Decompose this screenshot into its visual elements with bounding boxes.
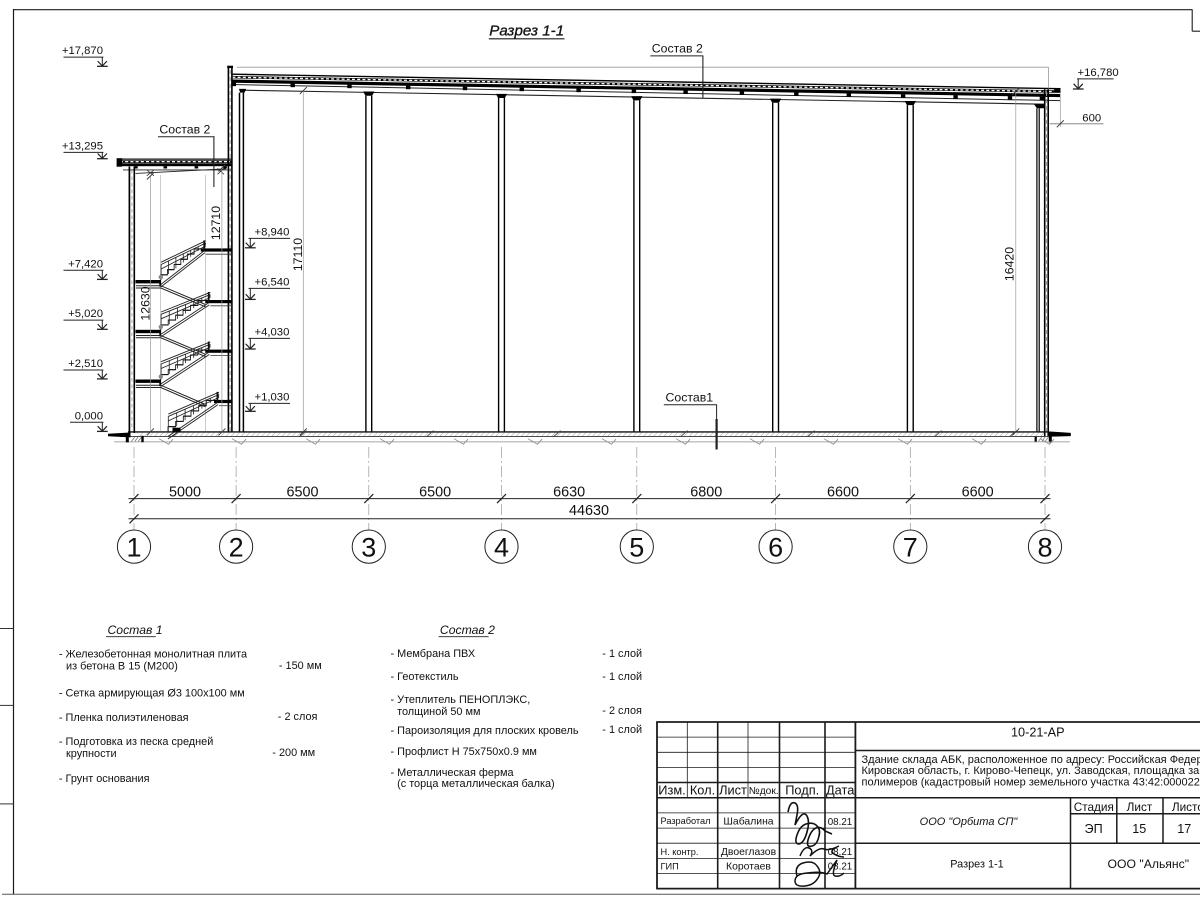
svg-text:- 1 слой: - 1 слой (602, 724, 642, 736)
svg-text:6800: 6800 (690, 484, 722, 500)
svg-text:Здание склада АБК, расположенн: Здание склада АБК, расположенное по адре… (862, 754, 1200, 766)
svg-text:+17,870: +17,870 (62, 45, 103, 57)
svg-text:ГИП: ГИП (661, 861, 679, 871)
svg-text:+8,940: +8,940 (255, 227, 290, 239)
svg-text:- Геотекстиль: - Геотекстиль (391, 671, 459, 683)
svg-text:- Грунт основания: - Грунт основания (59, 773, 150, 785)
svg-text:- 2 слоя: - 2 слоя (602, 705, 642, 717)
svg-text:16420: 16420 (1002, 247, 1016, 281)
svg-text:- Пароизоляция для плоских кро: - Пароизоляция для плоских кровель (391, 725, 579, 737)
svg-text:- Пленка полиэтиленовая: - Пленка полиэтиленовая (59, 712, 189, 724)
svg-text:600: 600 (1082, 113, 1101, 125)
svg-text:Двоеглазов: Двоеглазов (721, 847, 777, 858)
svg-text:Кировская область, г. Кирово-Ч: Кировская область, г. Кирово-Чепецк, ул.… (862, 765, 1200, 777)
svg-text:10-21-АР: 10-21-АР (1011, 726, 1065, 740)
svg-text:3: 3 (361, 532, 376, 562)
svg-text:Состав 2: Состав 2 (652, 42, 703, 56)
svg-text:+1,030: +1,030 (255, 392, 290, 404)
svg-text:Лист: Лист (1127, 800, 1153, 814)
svg-text:- 1 слой: - 1 слой (602, 648, 642, 660)
svg-text:полимеров (кадастровый номер з: полимеров (кадастровый номер земельного … (862, 777, 1200, 789)
svg-text:6600: 6600 (827, 484, 859, 500)
svg-text:- Железобетонная монолитная п: - Железобетонная монолитная плита (59, 648, 248, 660)
svg-text:- 2 слоя: - 2 слоя (278, 711, 318, 723)
svg-text:крупности: крупности (66, 748, 117, 760)
svg-text:Состав 2: Состав 2 (440, 623, 495, 637)
svg-text:- Мембрана ПВХ: - Мембрана ПВХ (391, 648, 476, 660)
svg-text:Н. контр.: Н. контр. (661, 847, 699, 857)
svg-text:Разработал: Разработал (661, 816, 711, 826)
svg-text:+6,540: +6,540 (255, 277, 290, 289)
svg-text:- Утеплитель ПЕНОПЛЭКС,: - Утеплитель ПЕНОПЛЭКС, (391, 694, 531, 706)
svg-text:15: 15 (1132, 822, 1146, 836)
svg-text:4: 4 (494, 532, 509, 562)
svg-text:6: 6 (768, 532, 783, 562)
svg-text:5000: 5000 (169, 484, 201, 500)
svg-text:Разрез 1-1: Разрез 1-1 (489, 23, 564, 40)
svg-text:ЭП: ЭП (1085, 822, 1103, 836)
svg-text:17: 17 (1177, 822, 1191, 836)
svg-text:6500: 6500 (286, 484, 318, 500)
svg-text:(с торца металлическая балка): (с торца металлическая балка) (397, 778, 555, 790)
svg-text:ООО "Альянс": ООО "Альянс" (1108, 857, 1190, 871)
svg-text:- Сетка армирующая Ø3 100х100: - Сетка армирующая Ø3 100х100 мм (59, 688, 245, 700)
svg-text:6500: 6500 (419, 484, 451, 500)
svg-text:+4,030: +4,030 (255, 327, 290, 339)
svg-text:8: 8 (1037, 532, 1052, 562)
svg-text:- 150 мм: - 150 мм (279, 660, 322, 672)
svg-text:1: 1 (126, 532, 141, 562)
svg-text:+2,510: +2,510 (68, 358, 103, 370)
svg-text:Листов: Листов (1172, 800, 1200, 814)
svg-text:№док.: №док. (749, 786, 779, 797)
svg-text:Дата: Дата (826, 783, 855, 798)
svg-text:Кол.: Кол. (690, 783, 715, 798)
svg-text:Стадия: Стадия (1074, 800, 1114, 814)
svg-text:- 1 слой: - 1 слой (602, 671, 642, 683)
svg-text:- Подготовка из песка средней: - Подготовка из песка средней (59, 736, 213, 748)
svg-text:17110: 17110 (291, 238, 305, 271)
svg-text:7: 7 (903, 532, 918, 562)
svg-text:08.21: 08.21 (828, 817, 853, 828)
svg-text:+7,420: +7,420 (68, 258, 103, 270)
svg-text:44630: 44630 (569, 503, 609, 519)
svg-text:- Профлист Н 75х750х0.9 мм: - Профлист Н 75х750х0.9 мм (391, 746, 537, 758)
svg-text:12710: 12710 (209, 206, 223, 240)
svg-text:Состав 2: Состав 2 (159, 123, 210, 137)
svg-text:+13,295: +13,295 (62, 141, 103, 153)
svg-text:Коротаев: Коротаев (726, 861, 771, 872)
svg-text:Состав 1: Состав 1 (108, 623, 163, 637)
svg-text:Изм.: Изм. (658, 783, 685, 798)
svg-text:ООО "Орбита СП": ООО "Орбита СП" (920, 816, 1019, 828)
svg-text:+16,780: +16,780 (1078, 67, 1119, 79)
svg-text:толщиной 50 мм: толщиной 50 мм (397, 706, 480, 718)
svg-text:Шабалина: Шабалина (723, 816, 773, 828)
svg-text:Состав1: Состав1 (666, 391, 714, 405)
svg-text:Подп.: Подп. (785, 783, 819, 798)
svg-text:12630: 12630 (138, 286, 152, 320)
svg-text:6600: 6600 (962, 484, 994, 500)
svg-text:6630: 6630 (553, 484, 585, 500)
svg-text:из бетона В 15 (М200): из бетона В 15 (М200) (66, 661, 178, 673)
svg-text:5: 5 (629, 532, 644, 562)
svg-text:Разрез 1-1: Разрез 1-1 (950, 859, 1003, 871)
svg-text:- 200 мм: - 200 мм (272, 747, 315, 759)
svg-text:Лист: Лист (719, 783, 747, 798)
svg-text:0,000: 0,000 (75, 410, 103, 422)
svg-text:2: 2 (229, 532, 244, 562)
svg-text:+5,020: +5,020 (68, 308, 103, 320)
